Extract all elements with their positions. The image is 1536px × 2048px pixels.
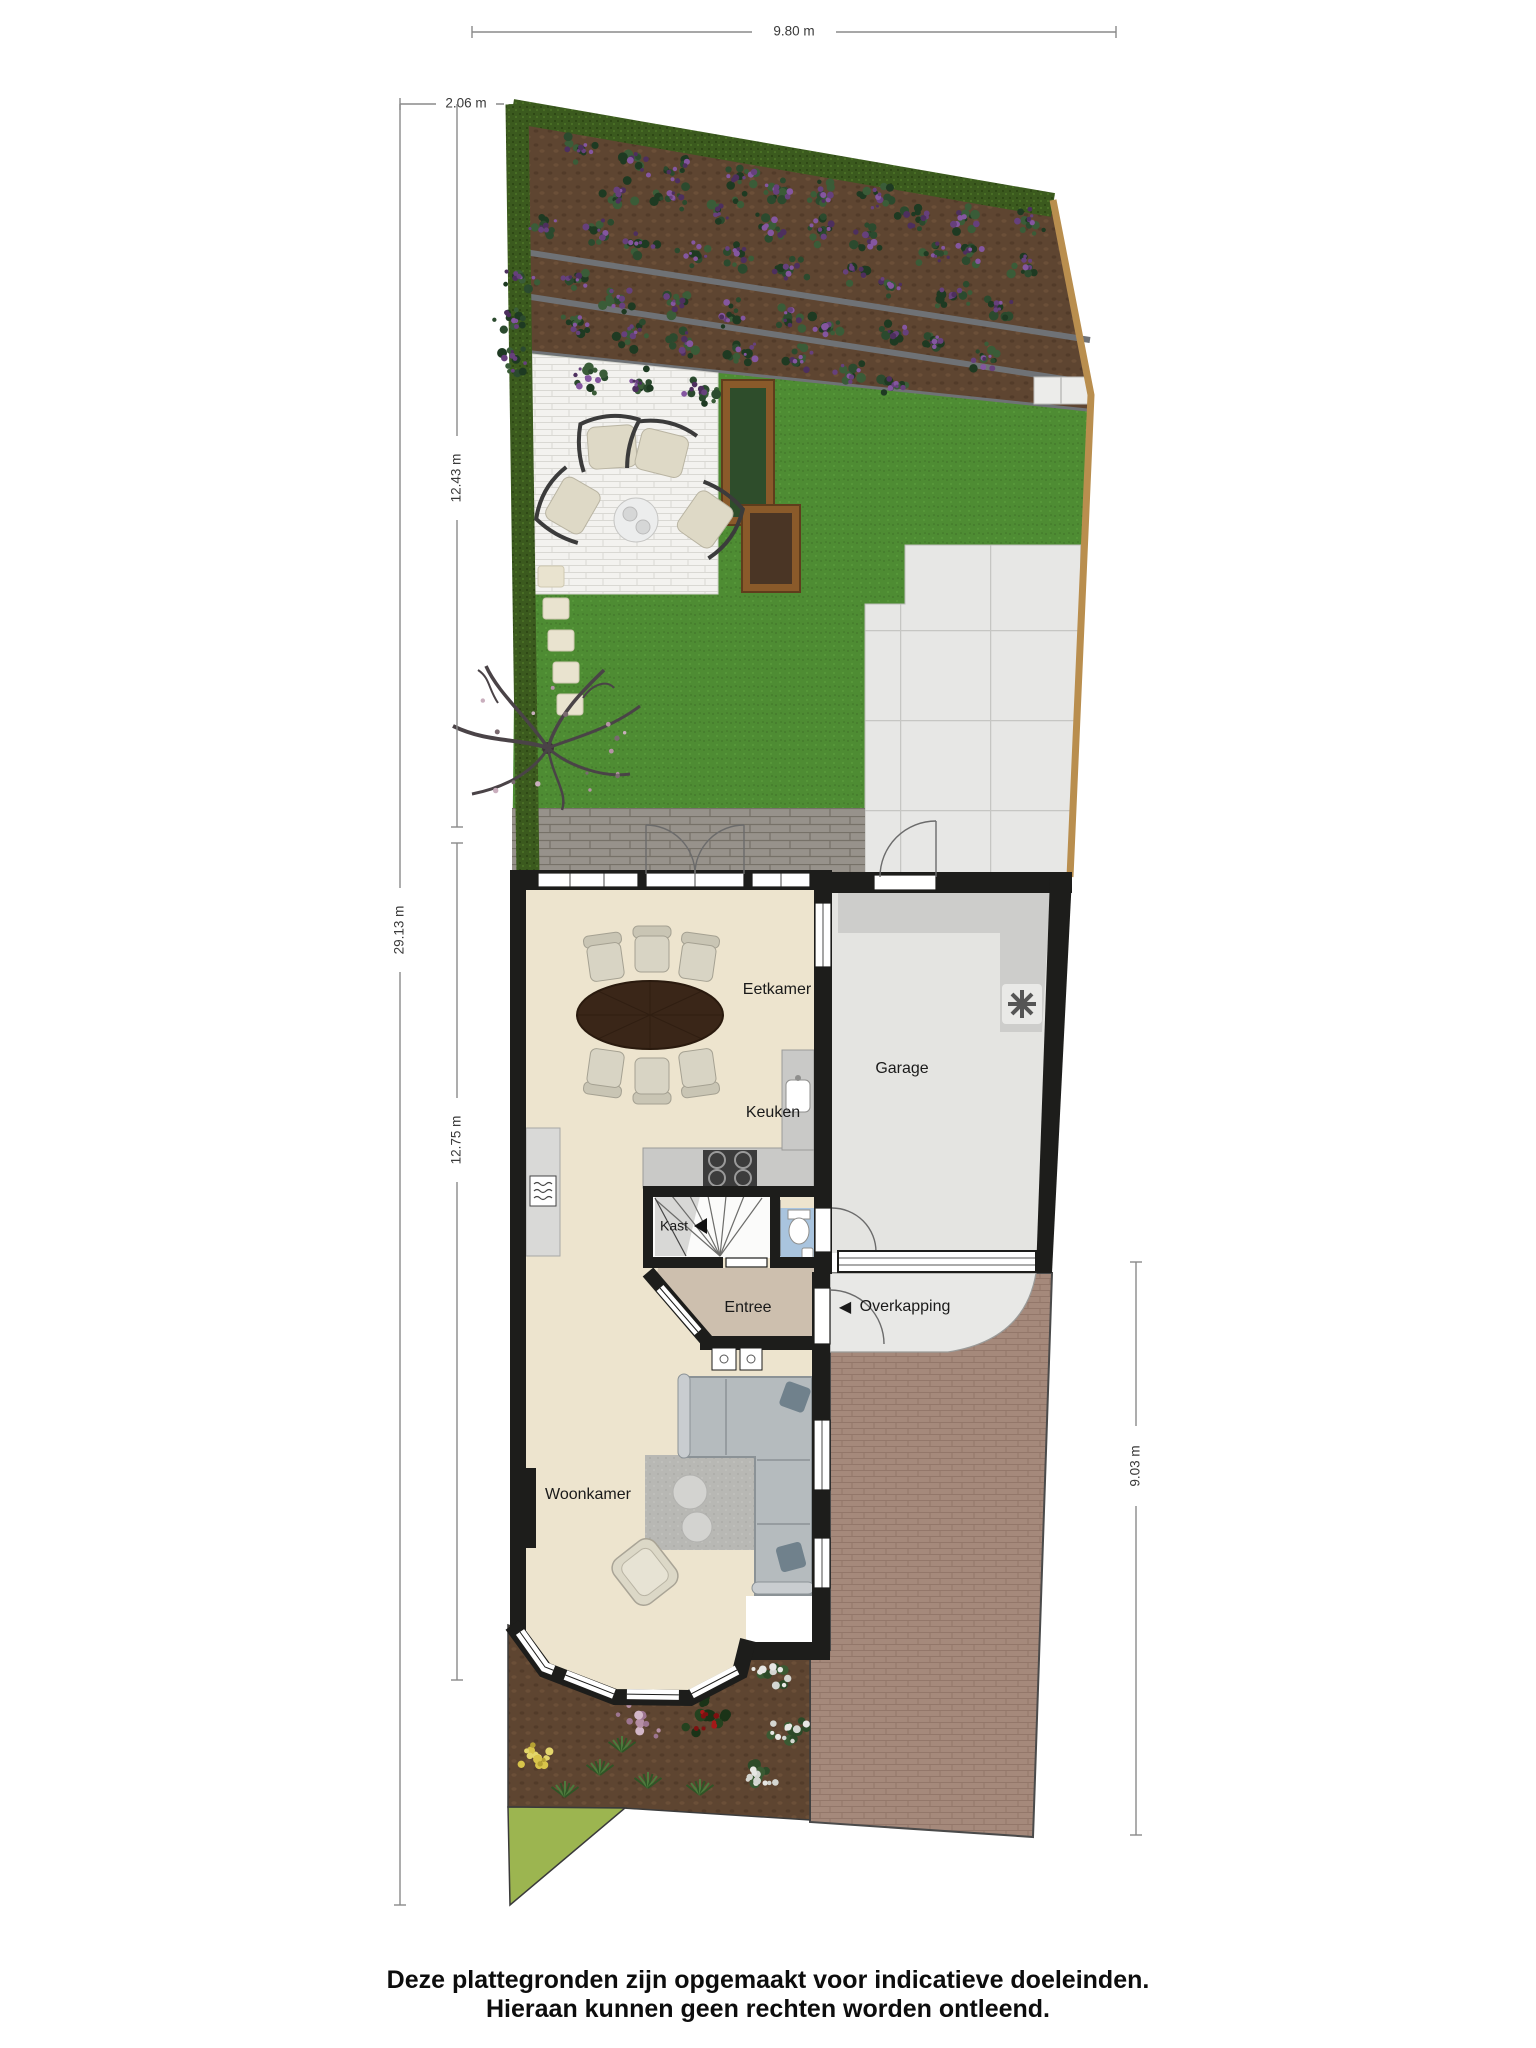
dimension-depth-driveway: 9.03 m bbox=[1124, 1262, 1148, 1835]
planter-box-flowers bbox=[742, 505, 800, 592]
vent-fan-icon bbox=[1002, 984, 1042, 1024]
room-label-canopy: Overkapping bbox=[860, 1298, 951, 1315]
dining-chair bbox=[633, 926, 671, 972]
room-label-dining: Eetkamer bbox=[743, 981, 812, 998]
canopy-arrow-icon: ◀ bbox=[839, 1299, 852, 1316]
garage-door bbox=[838, 1251, 1036, 1272]
front-door bbox=[814, 1288, 830, 1344]
dimension-depth-house: 12.75 m bbox=[445, 843, 469, 1680]
planter-box-shrubs bbox=[722, 380, 774, 525]
toilet-door bbox=[726, 1258, 767, 1267]
floor-plan: Eetkamer Keuken Garage Kast Entree Overk… bbox=[0, 0, 1536, 2048]
dimension-offset-top-left: 2.06 m bbox=[400, 93, 504, 115]
dining-table bbox=[577, 981, 723, 1049]
grass-triangle bbox=[508, 1807, 625, 1905]
floor-plan-page: Eetkamer Keuken Garage Kast Entree Overk… bbox=[0, 0, 1536, 2048]
svg-text:2.06 m: 2.06 m bbox=[445, 96, 486, 111]
window bbox=[538, 873, 638, 887]
oven-icon bbox=[530, 1176, 556, 1206]
dining-chair bbox=[633, 1058, 671, 1104]
terrace bbox=[512, 808, 865, 877]
driveway bbox=[810, 1273, 1052, 1837]
disclaimer-line-1: Deze plattegronden zijn opgemaakt voor i… bbox=[0, 1966, 1536, 1995]
svg-text:29.13 m: 29.13 m bbox=[392, 906, 407, 955]
svg-text:9.03 m: 9.03 m bbox=[1128, 1445, 1143, 1486]
room-label-entrance: Entree bbox=[724, 1299, 771, 1316]
svg-text:12.75 m: 12.75 m bbox=[449, 1116, 464, 1165]
lounge-table bbox=[614, 498, 658, 542]
pouf bbox=[682, 1512, 712, 1542]
dimension-depth-garden: 12.43 m bbox=[445, 104, 469, 827]
dimension-width-top: 9.80 m bbox=[472, 20, 1116, 44]
garage-inner-door bbox=[815, 1208, 831, 1252]
svg-text:9.80 m: 9.80 m bbox=[773, 24, 814, 39]
dimension-depth-total: 29.13 m bbox=[388, 104, 412, 1905]
disclaimer-line-2: Hieraan kunnen geen rechten worden ontle… bbox=[0, 1995, 1536, 2024]
room-label-closet: Kast bbox=[660, 1218, 688, 1234]
small-tiles bbox=[1034, 377, 1090, 404]
garage-side-door bbox=[874, 875, 936, 890]
room-label-kitchen: Keuken bbox=[746, 1104, 800, 1121]
hob bbox=[703, 1150, 757, 1187]
dining-set bbox=[577, 926, 723, 1104]
room-label-garage: Garage bbox=[875, 1060, 928, 1077]
room-label-living: Woonkamer bbox=[545, 1486, 632, 1503]
back-garden bbox=[453, 104, 1092, 877]
svg-text:12.43 m: 12.43 m bbox=[449, 454, 464, 503]
pouf bbox=[673, 1475, 707, 1509]
